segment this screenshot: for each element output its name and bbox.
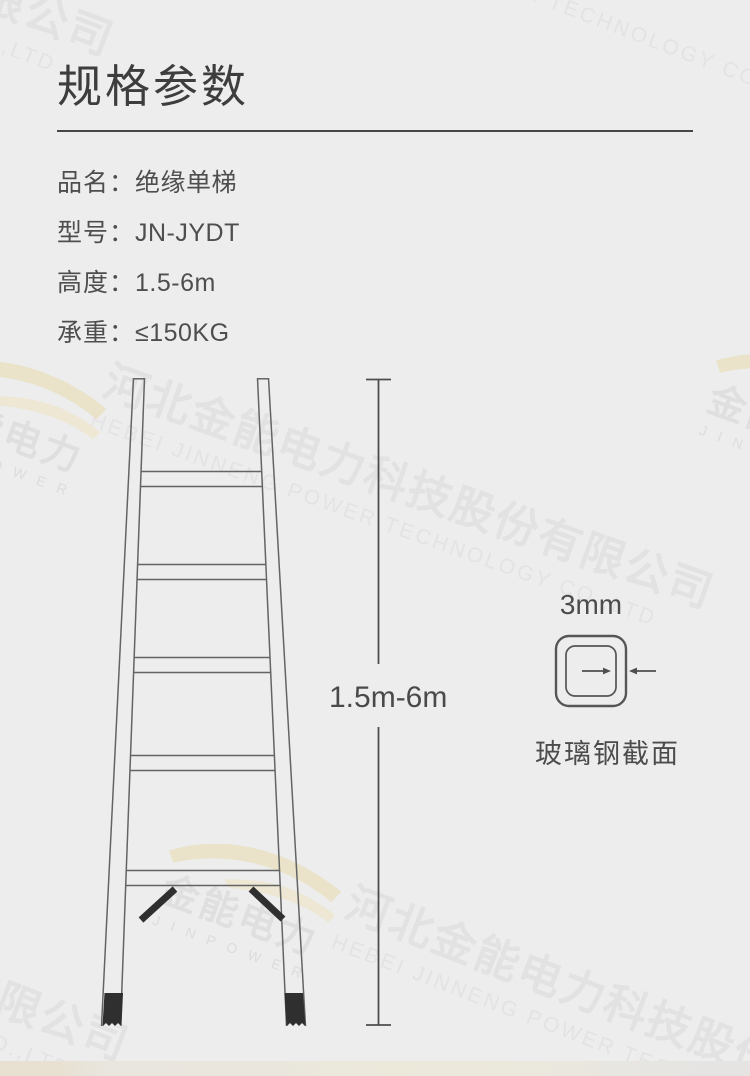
dimension-line	[366, 380, 391, 1026]
ladder-braces	[141, 889, 283, 920]
ladder-rails	[102, 378, 306, 1026]
ladder-diagram	[0, 0, 750, 1076]
bottom-photo-edge	[0, 1061, 750, 1076]
product-spec-page: 河北金能电力科技股份有限公司 HEBEI JINNENG POWER TECHN…	[0, 0, 750, 1076]
ladder-feet	[103, 993, 306, 1026]
ladder-rungs	[125, 472, 280, 886]
content-layer: 规格参数 品名：绝缘单梯 型号：JN-JYDT 高度：1.5-6m 承重：≤15…	[0, 0, 750, 1076]
